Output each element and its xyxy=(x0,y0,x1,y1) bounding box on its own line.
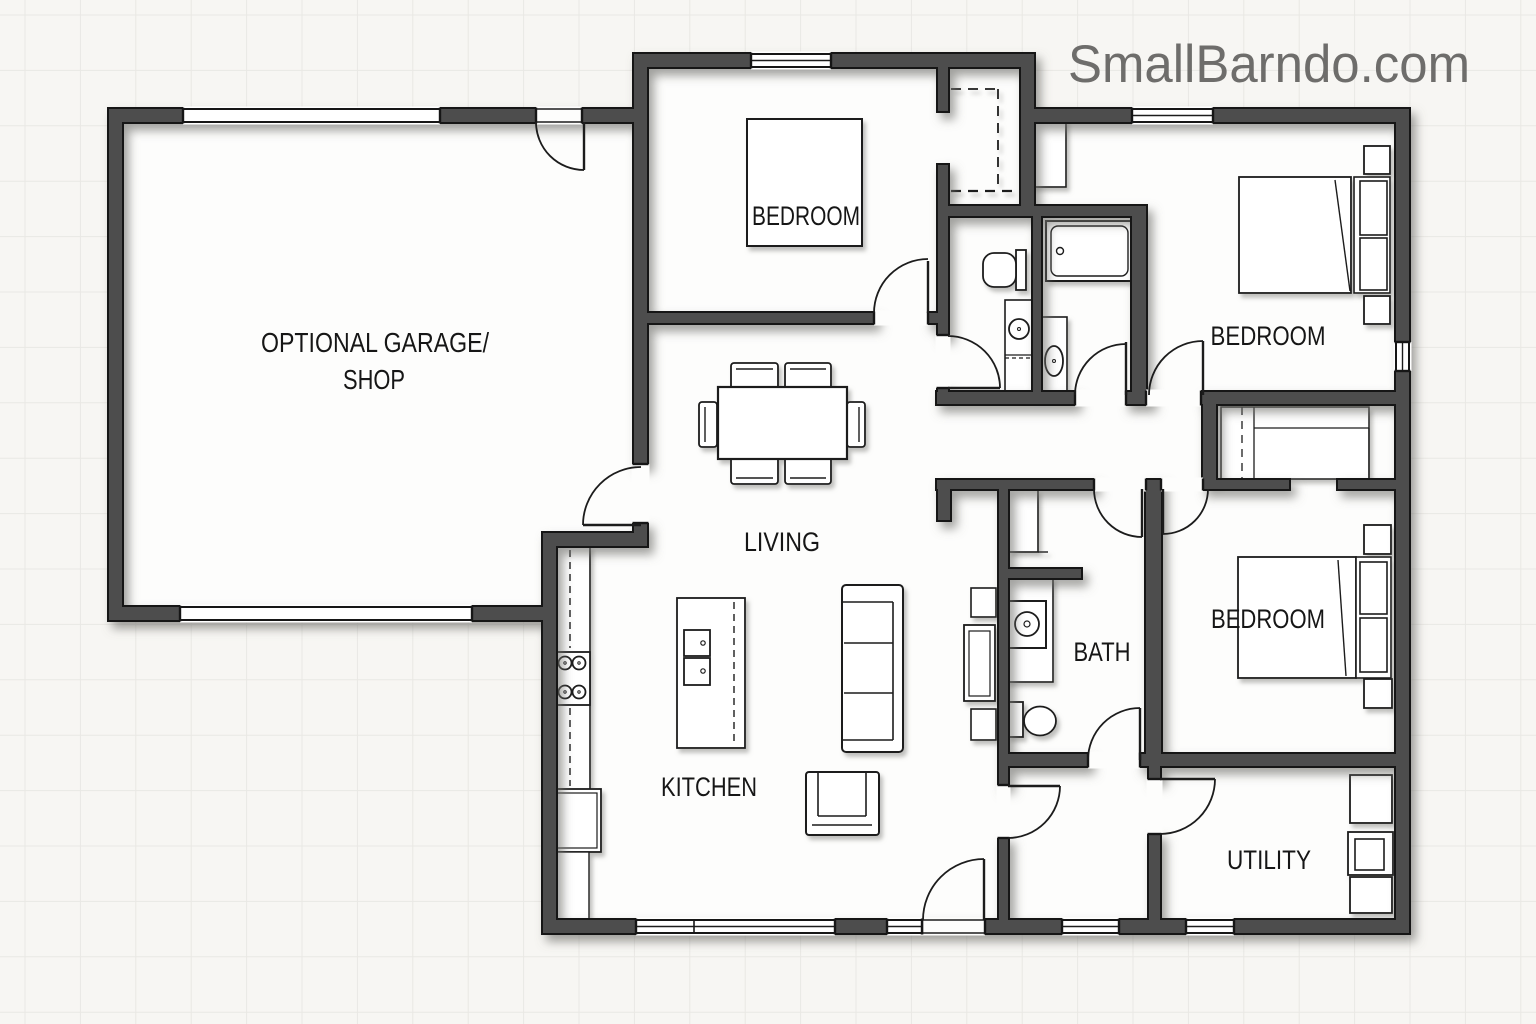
svg-text:KITCHEN: KITCHEN xyxy=(661,772,757,802)
svg-text:BEDROOM: BEDROOM xyxy=(752,201,860,231)
svg-text:UTILITY: UTILITY xyxy=(1227,845,1311,875)
svg-text:LIVING: LIVING xyxy=(744,527,820,557)
svg-text:BATH: BATH xyxy=(1074,637,1131,667)
svg-text:OPTIONAL GARAGE/: OPTIONAL GARAGE/ xyxy=(261,327,489,358)
svg-text:SHOP: SHOP xyxy=(343,364,405,395)
svg-text:BEDROOM: BEDROOM xyxy=(1211,604,1325,634)
svg-text:SmallBarndo.com: SmallBarndo.com xyxy=(1068,35,1470,94)
svg-text:BEDROOM: BEDROOM xyxy=(1211,321,1326,351)
